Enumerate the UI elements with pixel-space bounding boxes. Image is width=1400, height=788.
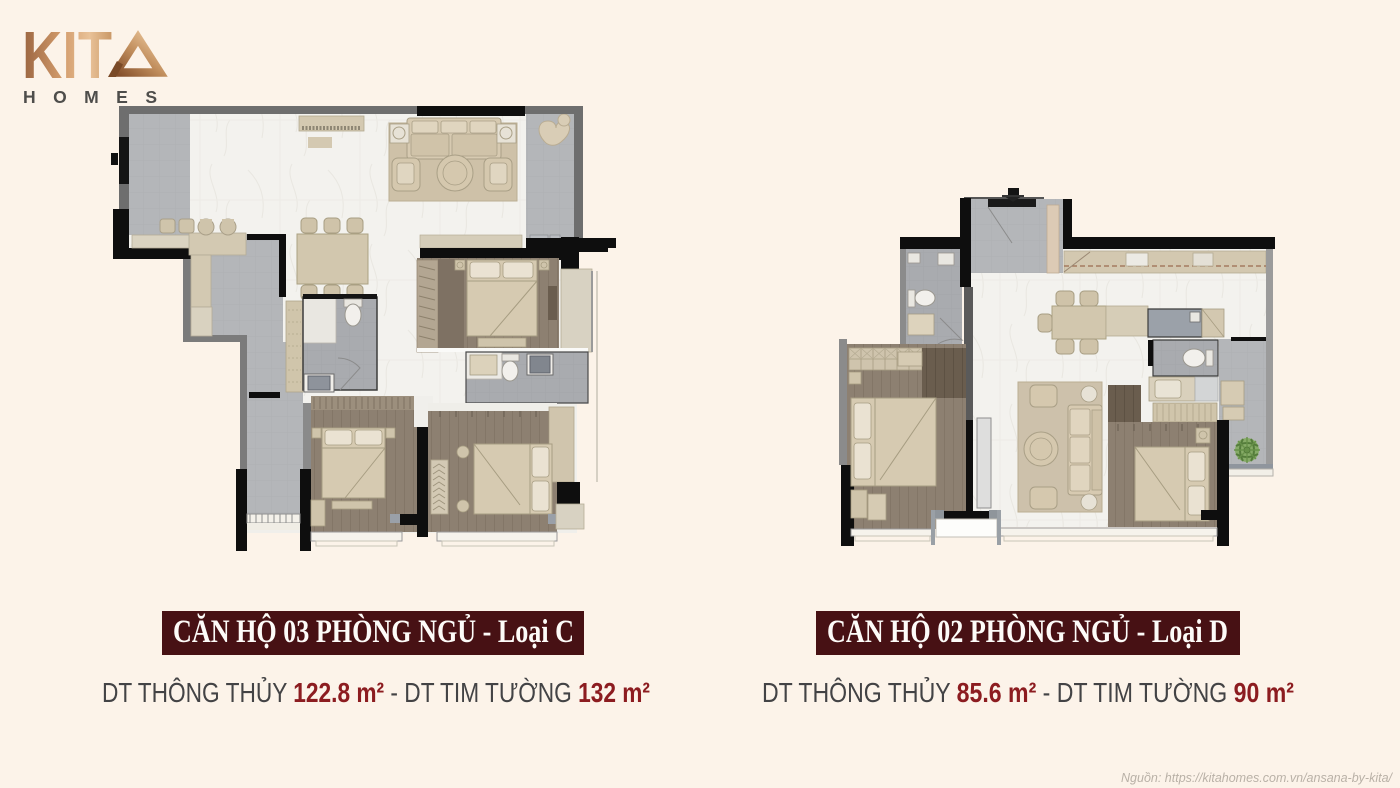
svg-text:CĂN HỘ 03 PHÒNG NGỦ - Loại C: CĂN HỘ 03 PHÒNG NGỦ - Loại C [173,612,574,650]
svg-text:KIT: KIT [22,18,112,93]
svg-text:DT THÔNG THỦY 85.6 m² - DT TIM: DT THÔNG THỦY 85.6 m² - DT TIM TƯỜNG 90 … [762,676,1294,708]
svg-text:Nguồn: https://kitahomes.com.v: Nguồn: https://kitahomes.com.vn/ansana-b… [1121,771,1393,785]
svg-text:CĂN HỘ 02 PHÒNG NGỦ - Loại D: CĂN HỘ 02 PHÒNG NGỦ - Loại D [827,612,1228,650]
svg-text:DT THÔNG THỦY 122.8 m² - DT TI: DT THÔNG THỦY 122.8 m² - DT TIM TƯỜNG 13… [102,676,650,708]
